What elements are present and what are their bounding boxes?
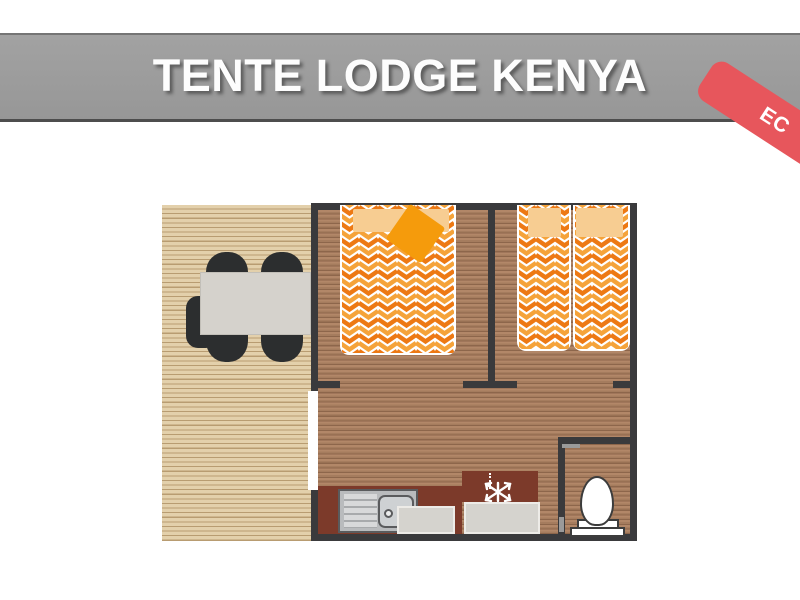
bathroom-door-opening [559,517,564,532]
bathroom-wall-top [558,437,630,444]
entrance-opening [308,391,318,490]
bathroom-door [562,444,580,448]
ribbon-label: EC [755,102,794,139]
wall-segment [318,381,340,388]
sink-drain [384,509,393,518]
pillow [528,208,561,237]
bedroom-divider-wall [488,210,495,388]
page-title: TENTE LODGE KENYA [0,33,800,119]
floor-plan-page: TENTE LODGE KENYA EC [0,0,800,600]
snowflake-icon [482,478,514,506]
dining-table [200,272,311,335]
pillow [576,208,623,237]
kitchen-appliance [397,506,455,534]
kitchen-appliance [464,502,540,534]
sink-drainboard [344,494,377,528]
wall-segment [463,381,517,388]
wall-segment [613,381,630,388]
toilet-bowl [580,476,614,526]
